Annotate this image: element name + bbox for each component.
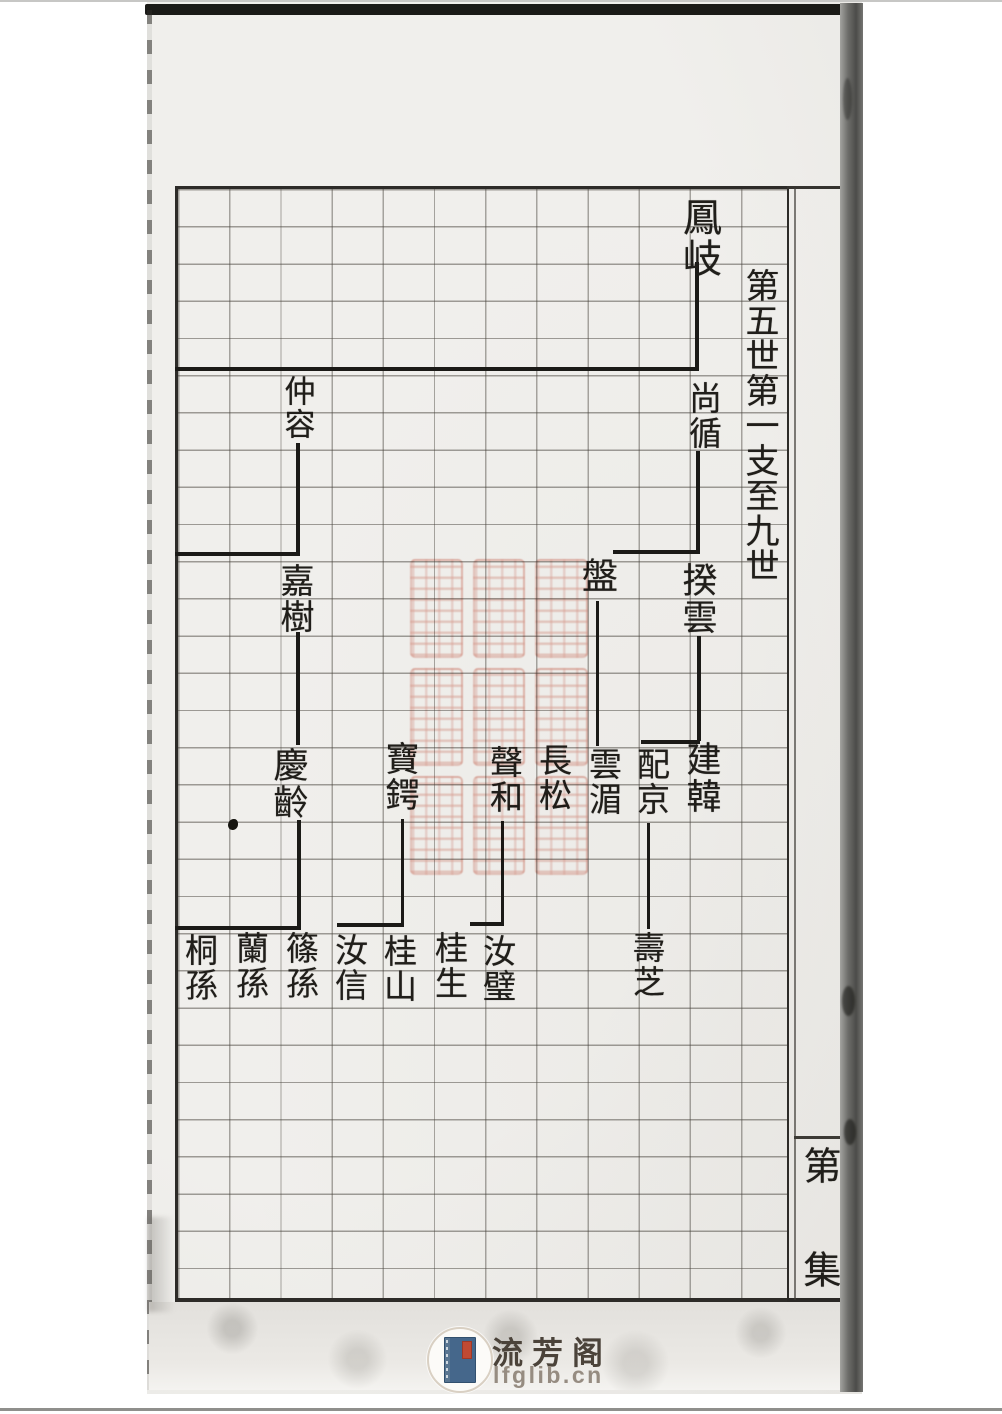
seal-glyph bbox=[535, 668, 588, 767]
scan-top-shadow-bar bbox=[145, 4, 858, 15]
tree-node-shangxun: 尚循 bbox=[685, 381, 718, 451]
tree-node-qingling: 慶齡 bbox=[271, 747, 306, 821]
seal-glyph bbox=[473, 559, 526, 658]
tree-node-ruxin: 汝信 bbox=[331, 933, 364, 1003]
margin-label-di: 第 bbox=[799, 1146, 837, 1186]
seal-glyph bbox=[410, 668, 463, 767]
seal-glyph bbox=[535, 776, 588, 875]
tree-node-guishan: 桂山 bbox=[380, 934, 413, 1004]
tree-node-guisheng: 桂生 bbox=[431, 931, 464, 1001]
tree-node-tongsun: 桐孫 bbox=[181, 933, 214, 1003]
tree-node-xiaosun: 篠孫 bbox=[282, 931, 315, 1001]
seal-glyph bbox=[410, 776, 463, 875]
tree-node-jiashu: 嘉樹 bbox=[276, 563, 310, 635]
book-stitch-lines bbox=[446, 1340, 448, 1380]
book-page-scan: 鳳岐 尚循 仲容 嘉樹 盤 揆雲 慶齡 寶鍔 聲和 長松 雲湄 配京 建韓 桐孫… bbox=[147, 2, 862, 1394]
tree-node-rubi: 汝璧 bbox=[479, 934, 512, 1004]
seal-glyph bbox=[473, 668, 526, 767]
tree-node-fengqi: 鳳岐 bbox=[680, 197, 719, 279]
site-watermark: 流芳阁 lfglib.cn bbox=[418, 1320, 638, 1400]
generation-header: 第五世第一支至九世 bbox=[741, 268, 775, 583]
scan-left-edge bbox=[147, 10, 152, 1390]
connector-shangxun-down bbox=[696, 451, 700, 553]
margin-label-ji: 集 bbox=[799, 1250, 837, 1290]
stitched-book-icon bbox=[444, 1337, 476, 1383]
seal-glyph bbox=[410, 559, 463, 658]
spine-smudge bbox=[844, 1119, 856, 1145]
scanned-genealogy-page: 鳳岐 尚循 仲容 嘉樹 盤 揆雲 慶齡 寶鍔 聲和 長松 雲湄 配京 建韓 桐孫… bbox=[0, 0, 1002, 1414]
branch-gen6 bbox=[175, 367, 699, 371]
tree-node-peijing: 配京 bbox=[633, 747, 666, 817]
seal-glyph bbox=[473, 776, 526, 875]
connector-kuiyun-down bbox=[697, 636, 701, 741]
page-bottom-border bbox=[0, 1408, 1002, 1411]
margin-column-divider bbox=[794, 1136, 840, 1139]
tree-node-jianhan: 建韓 bbox=[684, 741, 719, 815]
tree-node-lansun: 蘭孫 bbox=[232, 931, 265, 1001]
connector-jiashu-down bbox=[296, 632, 300, 745]
spine-smudge bbox=[843, 78, 852, 120]
connector-zhongrong-down bbox=[296, 443, 300, 555]
book-title-label bbox=[462, 1341, 472, 1359]
branch-zhongrong-children bbox=[175, 552, 300, 556]
branch-shenghe-children bbox=[470, 922, 504, 926]
watermark-badge bbox=[427, 1327, 493, 1393]
tree-node-shouzhi: 壽芝 bbox=[631, 931, 663, 999]
connector-pan-down bbox=[596, 601, 599, 746]
margin-column-line bbox=[794, 188, 796, 1300]
watermark-site-url: lfglib.cn bbox=[493, 1362, 604, 1389]
connector-peijing-down bbox=[647, 823, 650, 929]
spine-smudge bbox=[842, 986, 855, 1016]
connector-qingling-down bbox=[297, 820, 301, 928]
branch-baoe-children bbox=[337, 923, 404, 927]
tree-node-kuiyun: 揆雲 bbox=[680, 562, 715, 636]
branch-shangxun-children bbox=[613, 550, 700, 554]
tree-node-zhongrong: 仲容 bbox=[282, 375, 313, 441]
paper-smudge bbox=[148, 1217, 174, 1312]
book-spine-band bbox=[840, 3, 863, 1392]
seal-glyph bbox=[535, 559, 588, 658]
branch-qingling-children bbox=[175, 926, 301, 930]
red-collection-seal bbox=[404, 553, 594, 881]
